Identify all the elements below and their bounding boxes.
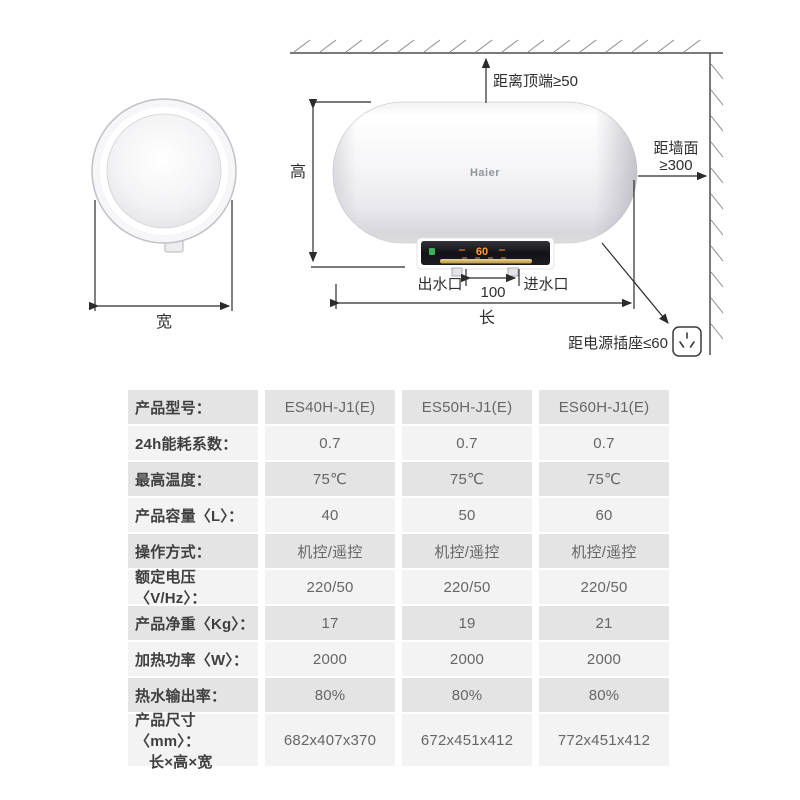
cell-value: 80% xyxy=(265,678,395,712)
table-row: 操作方式：机控/遥控机控/遥控机控/遥控 xyxy=(128,534,669,568)
cell-value: 19 xyxy=(402,606,532,640)
row-label: 加热功率〈W〉： xyxy=(128,642,258,676)
cell-value: 672x451x412 xyxy=(402,714,532,766)
cell-value: 682x407x370 xyxy=(265,714,395,766)
cell-value: 0.7 xyxy=(402,426,532,460)
cell-value: 机控/遥控 xyxy=(402,534,532,568)
cell-value: ES40H-J1(E) xyxy=(265,390,395,424)
pipe-spacing-label: 100 xyxy=(480,284,505,301)
ceiling-hatch xyxy=(294,40,700,52)
top-clearance-label: 距离顶端≥50 xyxy=(493,73,578,90)
cell-value: 机控/遥控 xyxy=(539,534,669,568)
table-row: 热水输出率：80%80%80% xyxy=(128,678,669,712)
temperature-display: 60 xyxy=(476,246,488,258)
cell-value: 0.7 xyxy=(265,426,395,460)
table-row: 产品型号：ES40H-J1(E)ES50H-J1(E)ES60H-J1(E) xyxy=(128,390,669,424)
row-label-text: 热水输出率： xyxy=(135,685,226,706)
cell-value: 75℃ xyxy=(402,462,532,496)
cell-value: 220/50 xyxy=(265,570,395,604)
gold-trim xyxy=(440,259,532,264)
cell-value: ES50H-J1(E) xyxy=(402,390,532,424)
cell-value: 220/50 xyxy=(402,570,532,604)
row-label-text: 产品型号： xyxy=(135,397,211,418)
cell-value: 60 xyxy=(539,498,669,532)
installation-diagram: 宽 Haier 60 距离顶端≥50 距墙面 ≥300 高 xyxy=(0,0,800,385)
cell-value: ES60H-J1(E) xyxy=(539,390,669,424)
table-row: 产品净重〈Kg〉：171921 xyxy=(128,606,669,640)
control-panel: 60 xyxy=(417,238,554,269)
cell-value: 0.7 xyxy=(539,426,669,460)
row-label: 操作方式： xyxy=(128,534,258,568)
row-label: 额定电压〈V/Hz〉： xyxy=(128,570,258,604)
height-label: 高 xyxy=(290,163,306,181)
socket-clearance-arrow xyxy=(602,243,668,323)
cell-value: 40 xyxy=(265,498,395,532)
wall-clearance-label-1: 距墙面 xyxy=(653,140,698,157)
cell-value: 2000 xyxy=(265,642,395,676)
cell-value: 21 xyxy=(539,606,669,640)
indicator-light xyxy=(429,248,435,255)
socket-clearance-label: 距电源插座≤60 xyxy=(568,335,668,352)
table-row: 最高温度：75℃75℃75℃ xyxy=(128,462,669,496)
row-label-text: 操作方式： xyxy=(135,541,211,562)
cell-value: 220/50 xyxy=(539,570,669,604)
cell-value: 2000 xyxy=(402,642,532,676)
brand-logo: Haier xyxy=(470,167,500,179)
row-label: 产品净重〈Kg〉： xyxy=(128,606,258,640)
table-row: 加热功率〈W〉：200020002000 xyxy=(128,642,669,676)
table-row: 产品尺寸〈mm〉：长×高×宽682x407x370672x451x412772x… xyxy=(128,714,669,766)
width-label: 宽 xyxy=(156,313,172,331)
row-label: 产品容量〈L〉： xyxy=(128,498,258,532)
row-label-text: 产品容量〈L〉： xyxy=(135,505,243,526)
outlet-label: 出水口 xyxy=(417,276,462,293)
ceiling xyxy=(290,40,723,53)
table-row: 产品容量〈L〉：405060 xyxy=(128,498,669,532)
row-label-text: 最高温度： xyxy=(135,469,211,490)
cell-value: 17 xyxy=(265,606,395,640)
cell-value: 50 xyxy=(402,498,532,532)
row-label: 产品尺寸〈mm〉：长×高×宽 xyxy=(128,714,258,766)
table-row: 24h能耗系数：0.70.70.7 xyxy=(128,426,669,460)
row-label: 24h能耗系数： xyxy=(128,426,258,460)
table-row: 额定电压〈V/Hz〉：220/50220/50220/50 xyxy=(128,570,669,604)
inlet-label: 进水口 xyxy=(523,276,568,293)
row-label-text: 额定电压〈V/Hz〉： xyxy=(135,566,258,608)
length-label: 长 xyxy=(479,309,495,327)
row-label-text: 24h能耗系数： xyxy=(135,433,237,454)
wall xyxy=(710,53,723,355)
wall-hatch xyxy=(711,64,723,339)
row-label: 热水输出率： xyxy=(128,678,258,712)
wall-clearance-label-2: ≥300 xyxy=(659,157,692,174)
power-socket-icon xyxy=(673,327,701,356)
cell-value: 75℃ xyxy=(539,462,669,496)
cell-value: 75℃ xyxy=(265,462,395,496)
cell-value: 机控/遥控 xyxy=(265,534,395,568)
row-label: 产品型号： xyxy=(128,390,258,424)
spec-table: 产品型号：ES40H-J1(E)ES50H-J1(E)ES60H-J1(E)24… xyxy=(128,390,669,768)
heater-front-view: Haier xyxy=(333,102,637,243)
cell-value: 80% xyxy=(402,678,532,712)
row-label-text: 产品净重〈Kg〉： xyxy=(135,613,254,634)
row-label-line2: 长×高×宽 xyxy=(149,751,213,772)
row-label: 最高温度： xyxy=(128,462,258,496)
heater-side-view xyxy=(92,99,236,252)
row-label-text: 产品尺寸〈mm〉： xyxy=(135,709,258,751)
cell-value: 2000 xyxy=(539,642,669,676)
cell-value: 772x451x412 xyxy=(539,714,669,766)
row-label-text: 加热功率〈W〉： xyxy=(135,649,248,670)
cell-value: 80% xyxy=(539,678,669,712)
